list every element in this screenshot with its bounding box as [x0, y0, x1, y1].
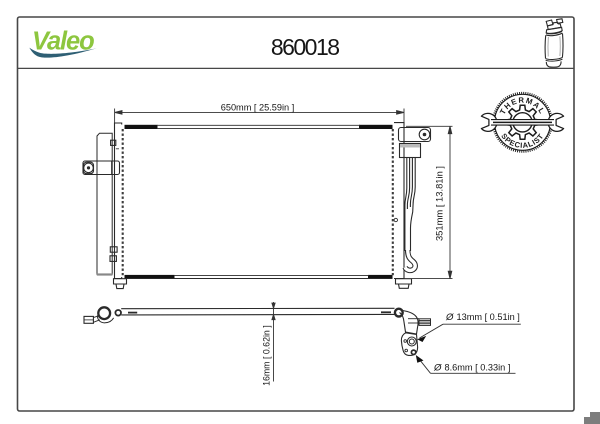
- svg-text:Ø: Ø: [433, 362, 442, 373]
- svg-text:860018: 860018: [271, 34, 339, 60]
- svg-text:13mm [ 0.51in ]: 13mm [ 0.51in ]: [457, 312, 520, 322]
- svg-text:351mm [ 13.81in ]: 351mm [ 13.81in ]: [434, 166, 445, 241]
- svg-text:8.6mm [ 0.33in ]: 8.6mm [ 0.33in ]: [445, 362, 511, 372]
- svg-text:16mm [ 0.62in ]: 16mm [ 0.62in ]: [261, 325, 271, 386]
- svg-text:Ø: Ø: [445, 312, 454, 323]
- svg-text:650mm [ 25.59in ]: 650mm [ 25.59in ]: [221, 103, 295, 113]
